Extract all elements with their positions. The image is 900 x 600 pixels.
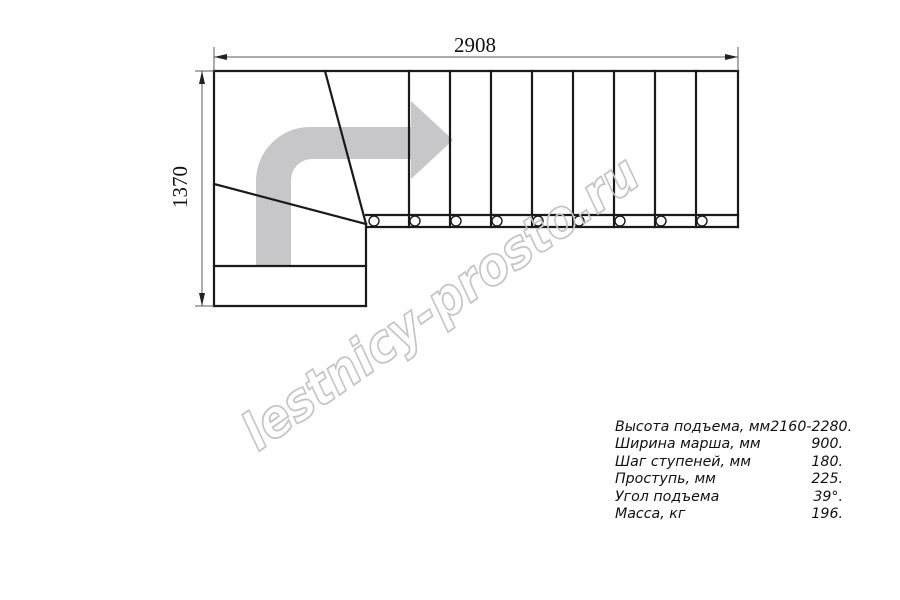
- spec-row-march-width: Ширина марша, мм 900.: [615, 436, 843, 453]
- spec-row-angle: Угол подъема 39°.: [615, 489, 843, 506]
- bolt-hole: [369, 216, 379, 226]
- spec-label: Проступь, мм: [615, 471, 716, 488]
- spec-value: 2160-2280.: [770, 419, 852, 436]
- spec-value: 180.: [811, 454, 843, 471]
- dim-arrow-bottom: [199, 293, 205, 306]
- width-dimension-label: 2908: [454, 33, 496, 57]
- spec-value: 39°.: [813, 489, 843, 506]
- spec-row-tread: Проступь, мм 225.: [615, 471, 843, 488]
- bolt-hole: [656, 216, 666, 226]
- dim-arrow-right: [725, 54, 738, 60]
- dimension-height: 1370: [168, 71, 214, 306]
- watermark-text: lestnicy-prosto.ru: [231, 144, 650, 463]
- spec-value: 225.: [811, 471, 843, 488]
- dim-arrow-top: [199, 71, 205, 84]
- stair-plan-drawing: 2908 1370 lestnicy-prosto.ru Высота подъ…: [0, 0, 900, 600]
- bolt-hole: [697, 216, 707, 226]
- spec-label: Ширина марша, мм: [615, 436, 761, 453]
- spec-row-mass: Масса, кг 196.: [615, 506, 843, 523]
- spec-row-step-rise: Шаг ступеней, мм 180.: [615, 454, 843, 471]
- dim-arrow-left: [214, 54, 227, 60]
- bolt-hole: [451, 216, 461, 226]
- spec-row-height: Высота подъема, мм 2160-2280.: [615, 419, 843, 436]
- spec-label: Угол подъема: [615, 489, 719, 506]
- spec-label: Масса, кг: [615, 506, 685, 523]
- dimension-width: 2908: [214, 33, 738, 71]
- spec-label: Высота подъема, мм: [615, 419, 770, 436]
- spec-value: 196.: [811, 506, 843, 523]
- bolt-hole: [410, 216, 420, 226]
- spec-value: 900.: [811, 436, 843, 453]
- spec-table: Высота подъема, мм 2160-2280. Ширина мар…: [615, 419, 843, 523]
- height-dimension-label: 1370: [168, 166, 192, 208]
- spec-label: Шаг ступеней, мм: [615, 454, 751, 471]
- bolt-hole: [615, 216, 625, 226]
